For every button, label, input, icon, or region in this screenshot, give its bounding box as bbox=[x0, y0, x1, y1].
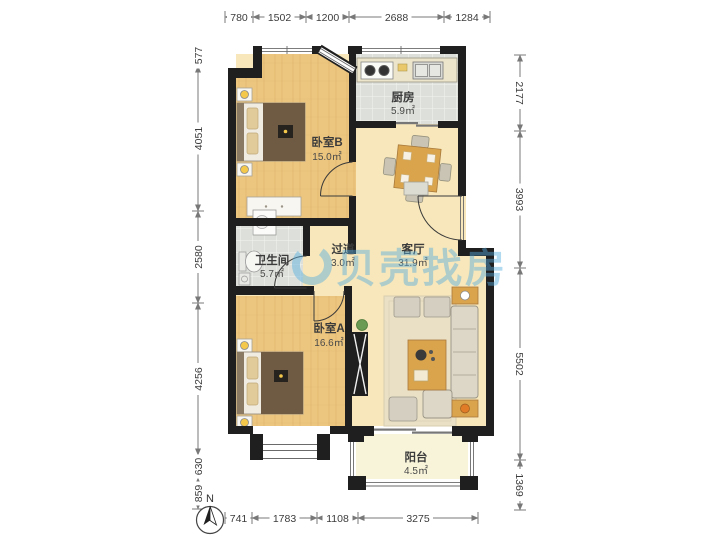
kitchen-label: 厨房 bbox=[392, 90, 415, 104]
balcony-label: 阳台 bbox=[405, 450, 428, 464]
bedroom-a-label: 卧室A bbox=[313, 321, 344, 335]
compass-north-label: N bbox=[206, 493, 214, 505]
bathroom-sink bbox=[239, 273, 250, 285]
bedroom-a-area: 16.6㎡ bbox=[314, 337, 343, 349]
dim-right-2: 5502 bbox=[513, 352, 525, 376]
dim-top-4: 1284 bbox=[455, 12, 479, 24]
dim-top-3: 2688 bbox=[385, 12, 409, 24]
bedroom-b-area: 15.0㎡ bbox=[312, 151, 341, 163]
dim-top-1: 1502 bbox=[268, 12, 292, 24]
dim-left-4: 630 bbox=[193, 458, 205, 476]
dimensions-left: 577 4051 2580 4256 630 859 bbox=[192, 43, 206, 510]
dim-left-0: 577 bbox=[193, 47, 205, 65]
dim-left-5: 859 bbox=[193, 485, 205, 503]
bedroom-b-window bbox=[262, 46, 312, 54]
dimensions-bottom: 741 1783 1108 3275 bbox=[225, 512, 478, 526]
toilet bbox=[239, 252, 246, 271]
dim-bottom-1: 1783 bbox=[273, 513, 297, 525]
dim-right-3: 1369 bbox=[513, 473, 525, 497]
dim-top-2: 1200 bbox=[316, 12, 340, 24]
dim-right-1: 3993 bbox=[513, 188, 525, 212]
dim-top-0: 780 bbox=[230, 12, 248, 24]
dim-bottom-2: 1108 bbox=[326, 513, 349, 525]
kitchen-area: 5.9㎡ bbox=[391, 105, 415, 117]
kitchen-furniture bbox=[357, 58, 457, 82]
coffee-table bbox=[408, 340, 446, 390]
floorplan-canvas: 卧室B 15.0㎡ 厨房 5.9㎡ 卫生间 5.7㎡ 过道 3.0㎡ 客厅 31… bbox=[0, 0, 720, 540]
balcony-area: 4.5㎡ bbox=[404, 465, 428, 477]
balcony-sliding-door bbox=[374, 429, 452, 434]
armchair bbox=[389, 397, 417, 421]
bathroom-area: 5.7㎡ bbox=[260, 268, 284, 280]
bathroom-label: 卫生间 bbox=[255, 253, 290, 267]
watermark-text: 贝壳找房 bbox=[336, 247, 508, 291]
dimensions-top: 780 1502 1200 2688 1284 bbox=[225, 11, 490, 25]
bedroom-b-furniture bbox=[237, 88, 305, 216]
dim-bottom-0: 741 bbox=[230, 513, 248, 525]
dimensions-right: 2177 3993 5502 1369 bbox=[513, 55, 527, 510]
dim-left-3: 4256 bbox=[193, 367, 205, 391]
exterior-mask bbox=[466, 40, 496, 250]
duct-shaft bbox=[352, 332, 368, 396]
plant bbox=[357, 320, 368, 331]
dim-right-0: 2177 bbox=[513, 81, 525, 105]
entry-cabinet bbox=[404, 182, 428, 195]
dim-left-2: 2580 bbox=[193, 245, 205, 269]
kitchen-window bbox=[362, 46, 440, 54]
bedroom-b-label: 卧室B bbox=[311, 135, 342, 149]
dim-bottom-3: 3275 bbox=[406, 513, 430, 525]
dim-left-1: 4051 bbox=[193, 127, 205, 151]
